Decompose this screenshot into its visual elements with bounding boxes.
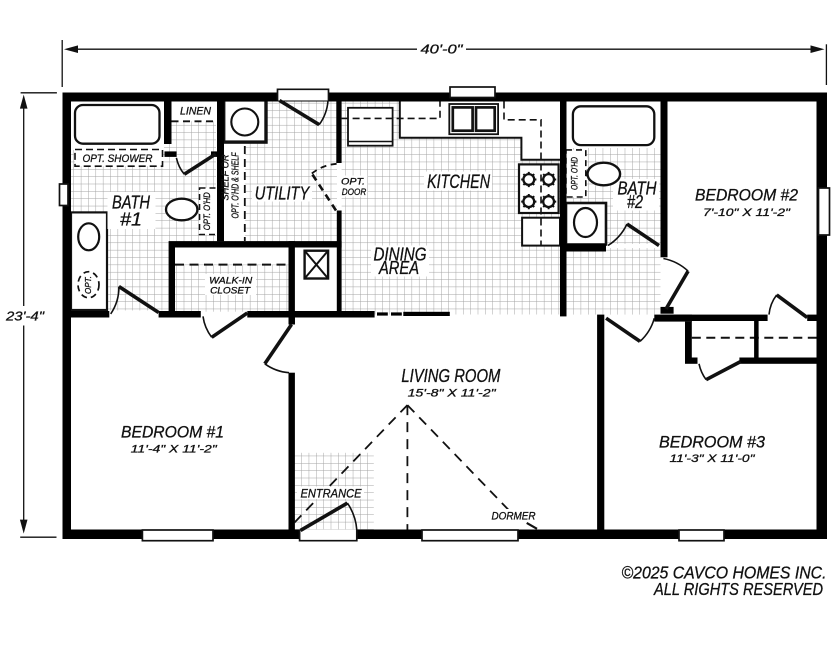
svg-text:11'-3" X 11'-0": 11'-3" X 11'-0": [670, 453, 756, 465]
svg-text:BEDROOM #2: BEDROOM #2: [695, 187, 798, 205]
svg-text:OPT. O'HD: OPT. O'HD: [570, 157, 580, 190]
svg-text:7'-10" X 11'-2": 7'-10" X 11'-2": [703, 207, 791, 219]
svg-text:BEDROOM #1: BEDROOM #1: [121, 424, 224, 442]
svg-text:LINEN: LINEN: [180, 106, 211, 118]
svg-text:40'-0": 40'-0": [421, 42, 465, 57]
svg-text:#1: #1: [120, 210, 142, 230]
svg-text:LIVING ROOM: LIVING ROOM: [401, 366, 500, 386]
svg-text:11'-4" X 11'-2": 11'-4" X 11'-2": [131, 443, 218, 455]
svg-text:AREA: AREA: [378, 258, 419, 278]
svg-text:OPT.: OPT.: [84, 276, 93, 294]
svg-text:DORMER: DORMER: [492, 511, 536, 523]
svg-text:CLOSET: CLOSET: [210, 285, 251, 296]
svg-text:#2: #2: [627, 192, 643, 212]
svg-text:DOOR: DOOR: [342, 187, 367, 197]
svg-text:KITCHEN: KITCHEN: [427, 172, 490, 193]
svg-text:ENTRANCE: ENTRANCE: [301, 487, 363, 501]
svg-text:23'-4": 23'-4": [5, 309, 46, 324]
svg-text:UTILITY: UTILITY: [255, 184, 311, 204]
svg-text:OPT. O'HD: OPT. O'HD: [202, 192, 212, 231]
svg-text:OPT. O'HD & SHELF: OPT. O'HD & SHELF: [231, 152, 242, 219]
svg-text:BEDROOM #3: BEDROOM #3: [659, 434, 766, 452]
svg-text:OPT. SHOWER: OPT. SHOWER: [83, 153, 153, 165]
svg-text:ALL RIGHTS RESERVED: ALL RIGHTS RESERVED: [653, 579, 823, 599]
svg-text:OPT.: OPT.: [341, 177, 365, 187]
svg-text:15'-8" X 11'-2": 15'-8" X 11'-2": [408, 388, 497, 400]
